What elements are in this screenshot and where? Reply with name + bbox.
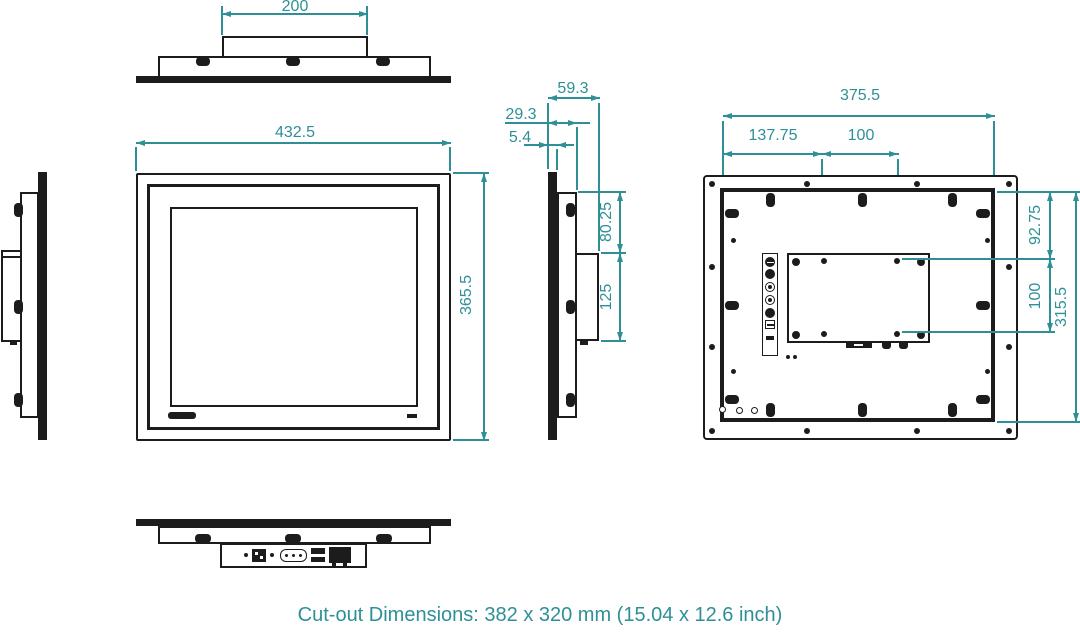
arrowhead-right-icon — [568, 120, 577, 126]
rear-box-nub — [580, 340, 588, 345]
arrowhead-left-icon — [548, 120, 557, 126]
flange-hole — [709, 344, 715, 350]
extension-line — [576, 127, 578, 190]
mounting-clip — [566, 393, 575, 407]
chassis-screw — [731, 369, 736, 374]
osd-button-icon — [765, 269, 775, 279]
mounting-clip — [376, 534, 392, 543]
corner-screw — [792, 258, 800, 266]
mounting-clip — [858, 403, 867, 417]
rear-box-lid-line — [2, 256, 21, 258]
corner-screw — [792, 331, 800, 339]
dim-label-rear-height: 315.5 — [1053, 277, 1071, 337]
dim-line — [1049, 192, 1051, 259]
arrowhead-up-icon — [617, 192, 623, 201]
right-side-bezel — [548, 172, 557, 440]
connector-stub — [766, 336, 774, 340]
osd-button-dot — [768, 298, 772, 302]
flange-hole — [804, 428, 810, 434]
vga-pin — [292, 554, 295, 557]
flange-hole — [709, 428, 715, 434]
lan-port-leg — [343, 563, 347, 568]
vesa-hole — [821, 331, 827, 337]
vesa-hole — [894, 258, 900, 264]
vga-pin — [299, 554, 302, 557]
mounting-clip — [976, 209, 990, 218]
vesa-hole — [821, 258, 827, 264]
io-connector-slot — [854, 344, 863, 346]
dim-label-vesa-left-offset: 137.75 — [745, 127, 801, 145]
power-led — [407, 414, 417, 418]
arrowhead-right-icon — [442, 140, 451, 146]
mounting-clip — [976, 301, 990, 310]
left-side-rear-box — [1, 250, 22, 342]
mounting-clip — [14, 203, 23, 217]
vesa-hole — [894, 331, 900, 337]
rear-box-nub — [10, 341, 17, 345]
arrowhead-left-icon — [222, 11, 231, 17]
vga-pin — [285, 554, 288, 557]
chassis-screw — [985, 369, 990, 374]
dc-power-connector — [252, 549, 266, 562]
arrowhead-left-icon — [822, 151, 831, 157]
mounting-clip — [858, 193, 867, 207]
mounting-clip — [948, 193, 957, 207]
mounting-clip — [948, 403, 957, 417]
mounting-clip — [725, 209, 739, 218]
extension-line — [135, 147, 137, 171]
dim-line — [524, 144, 574, 146]
mounting-clip — [976, 395, 990, 404]
arrowhead-down-icon — [617, 244, 623, 253]
vesa-plate — [787, 253, 930, 343]
dim-line — [723, 115, 995, 117]
mounting-clip — [285, 534, 301, 543]
chassis-screw — [985, 238, 990, 243]
flange-hole — [1006, 264, 1012, 270]
arrowhead-down-icon — [481, 432, 487, 441]
usb-port — [311, 548, 325, 554]
dc-jack-screw — [244, 553, 248, 557]
dim-line — [222, 13, 368, 15]
screw-dot — [793, 355, 797, 359]
extension-line — [449, 147, 451, 171]
flange-hole — [914, 428, 920, 434]
chassis-screw — [731, 238, 736, 243]
dim-label-vesa-pitch-h: 100 — [841, 127, 881, 145]
extension-line — [547, 103, 549, 169]
flange-hole — [709, 181, 715, 187]
arrowhead-right-icon — [986, 113, 995, 119]
dim-label-vesa-pitch-v: 100 — [1027, 276, 1045, 316]
mounting-clip — [566, 300, 575, 314]
arrowhead-up-icon — [1047, 192, 1053, 201]
extension-line — [556, 149, 558, 170]
dim-line — [483, 173, 485, 441]
screw-dot — [786, 355, 790, 359]
arrowhead-right-icon — [591, 95, 600, 101]
mounting-clip — [725, 301, 739, 310]
flange-hole — [1006, 428, 1012, 434]
flange-hole — [1006, 181, 1012, 187]
dim-label-vesa-top-offset: 92.75 — [1027, 195, 1045, 255]
mounting-clip — [766, 193, 775, 207]
right-side-rear-box — [575, 253, 599, 341]
arrowhead-down-icon — [617, 332, 623, 341]
arrowhead-down-icon — [1047, 250, 1053, 259]
extension-line — [997, 421, 1080, 423]
dim-line — [136, 142, 451, 144]
arrowhead-left-icon — [723, 151, 732, 157]
dim-line — [1049, 259, 1051, 332]
osd-button-icon — [765, 308, 775, 318]
dc-pin — [260, 556, 263, 559]
brand-logo — [168, 412, 196, 419]
arrowhead-up-icon — [1047, 259, 1053, 268]
technical-drawing: 200 432.5 365.5 59.3 29.3 5.4 — [0, 0, 1080, 636]
usb-port — [311, 557, 325, 562]
flange-hole — [914, 181, 920, 187]
cutout-caption: Cut-out Dimensions: 382 x 320 mm (15.04 … — [0, 604, 1080, 627]
dim-label-rear-width: 375.5 — [830, 87, 890, 105]
dim-line — [723, 153, 899, 155]
arrowhead-left-icon — [557, 142, 566, 148]
arrowhead-down-icon — [1073, 413, 1079, 422]
dim-line — [619, 253, 621, 341]
arrowhead-right-icon — [889, 151, 898, 157]
osd-button-cross — [767, 262, 774, 264]
io-connector — [882, 342, 891, 349]
drain-hole — [736, 407, 743, 414]
arrowhead-left-icon — [136, 140, 145, 146]
display-screen — [170, 207, 418, 407]
mounting-clip — [195, 534, 211, 543]
drain-hole — [751, 407, 758, 414]
top-view-rear-box — [222, 36, 368, 58]
top-view-front-bezel — [136, 76, 451, 83]
flange-hole — [709, 264, 715, 270]
osd-button-dot — [768, 285, 772, 289]
mounting-clip — [566, 203, 575, 217]
dim-label-front-width: 432.5 — [265, 124, 325, 142]
io-connector — [899, 342, 908, 349]
mounting-clip — [14, 300, 23, 314]
usb-icon-line — [767, 324, 774, 326]
mounting-clip — [196, 57, 210, 66]
extension-line — [902, 331, 1055, 333]
mounting-clip — [725, 395, 739, 404]
mounting-clip — [376, 57, 390, 66]
arrowhead-left-icon — [548, 95, 557, 101]
extension-line — [997, 191, 1080, 193]
dc-pin — [255, 552, 258, 555]
arrowhead-up-icon — [617, 253, 623, 262]
arrowhead-right-icon — [813, 151, 822, 157]
lan-port — [329, 547, 351, 563]
mounting-clip — [766, 403, 775, 417]
flange-hole — [1006, 344, 1012, 350]
dim-label-front-height: 365.5 — [458, 265, 476, 325]
dim-label-top-to-box: 80.25 — [598, 192, 616, 252]
dim-line — [1075, 192, 1077, 422]
extension-line — [902, 258, 1055, 260]
extension-line — [366, 6, 368, 35]
flange-hole — [804, 181, 810, 187]
arrowhead-left-icon — [723, 113, 732, 119]
lan-port-leg — [332, 563, 336, 568]
dim-label-box-height: 125 — [598, 274, 616, 320]
mounting-clip — [286, 57, 300, 66]
arrowhead-up-icon — [481, 173, 487, 182]
drain-hole — [719, 406, 726, 413]
arrowhead-up-icon — [1073, 192, 1079, 201]
bottom-front-bezel — [136, 519, 451, 526]
extension-line — [221, 6, 223, 35]
mounting-clip — [14, 393, 23, 407]
dc-jack-screw — [270, 553, 274, 557]
left-side-bezel — [38, 172, 47, 440]
